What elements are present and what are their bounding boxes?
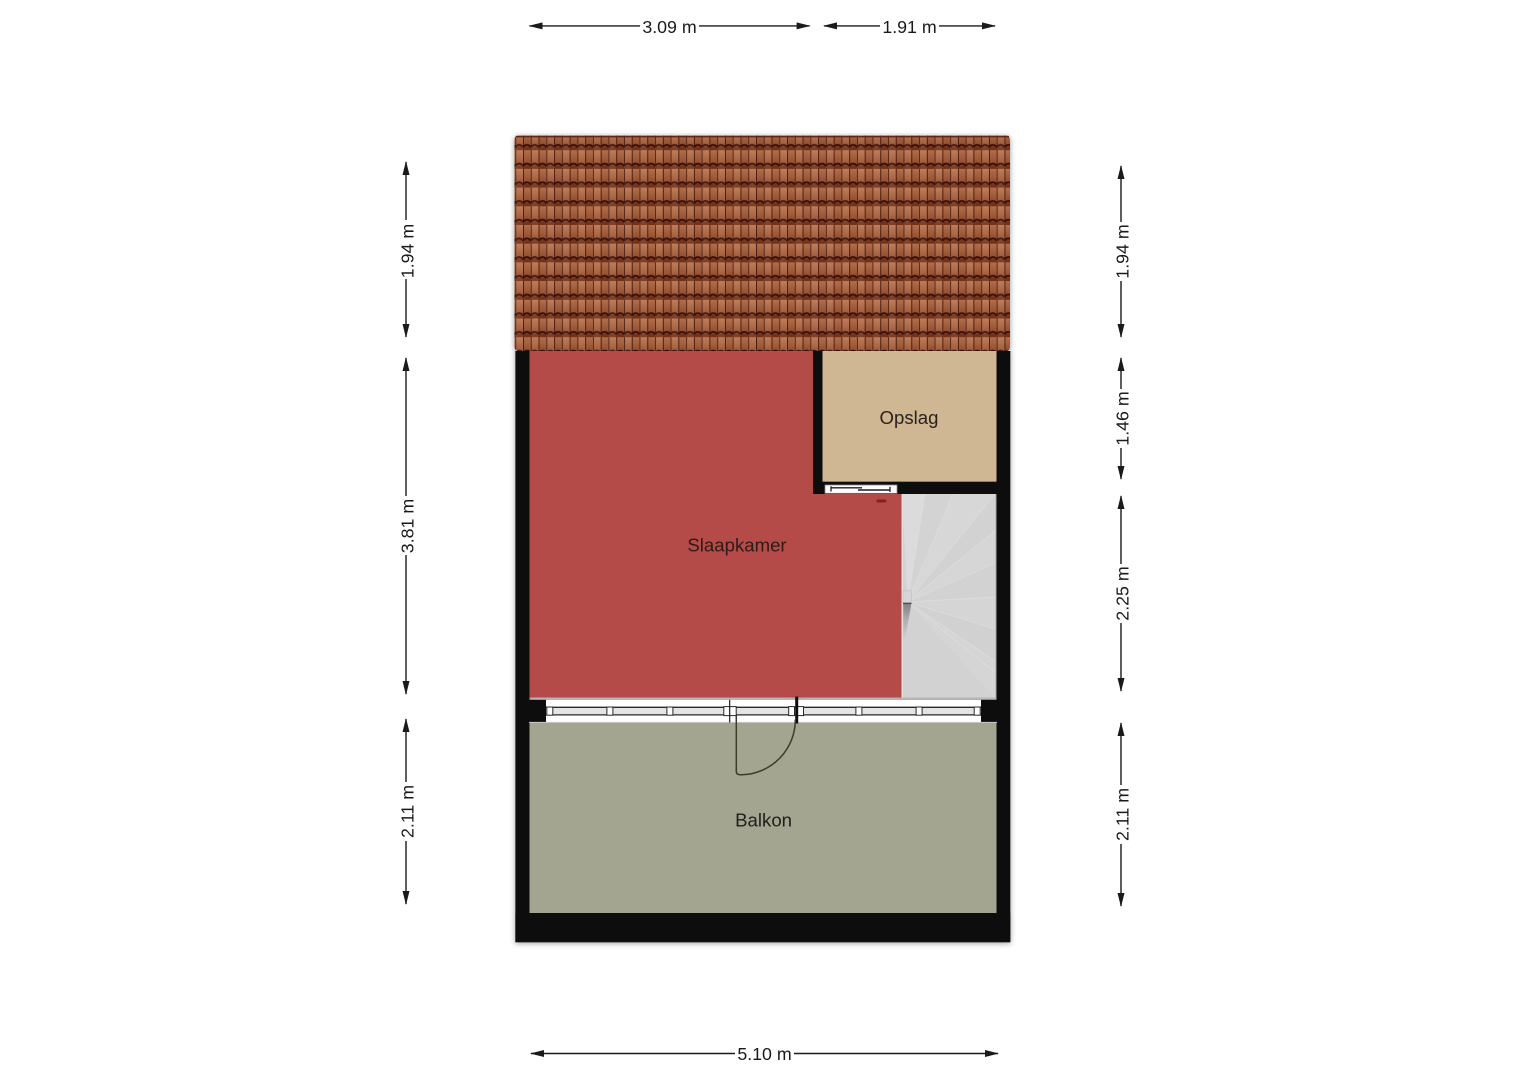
svg-text:Balkon: Balkon [735,810,792,831]
svg-text:2.11 m: 2.11 m [398,785,418,838]
svg-text:5.10 m: 5.10 m [737,1044,791,1064]
svg-text:1.46 m: 1.46 m [1113,391,1133,445]
svg-text:2.25 m: 2.25 m [1113,566,1133,620]
svg-text:3.09 m: 3.09 m [642,17,696,37]
svg-text:1.94 m: 1.94 m [398,224,418,278]
svg-text:2.11 m: 2.11 m [1113,788,1133,841]
svg-text:Opslag: Opslag [880,407,939,428]
svg-text:1.94 m: 1.94 m [1113,224,1133,278]
svg-text:Slaapkamer: Slaapkamer [687,535,786,556]
svg-text:3.81 m: 3.81 m [398,499,418,553]
svg-text:1.91 m: 1.91 m [882,17,936,37]
